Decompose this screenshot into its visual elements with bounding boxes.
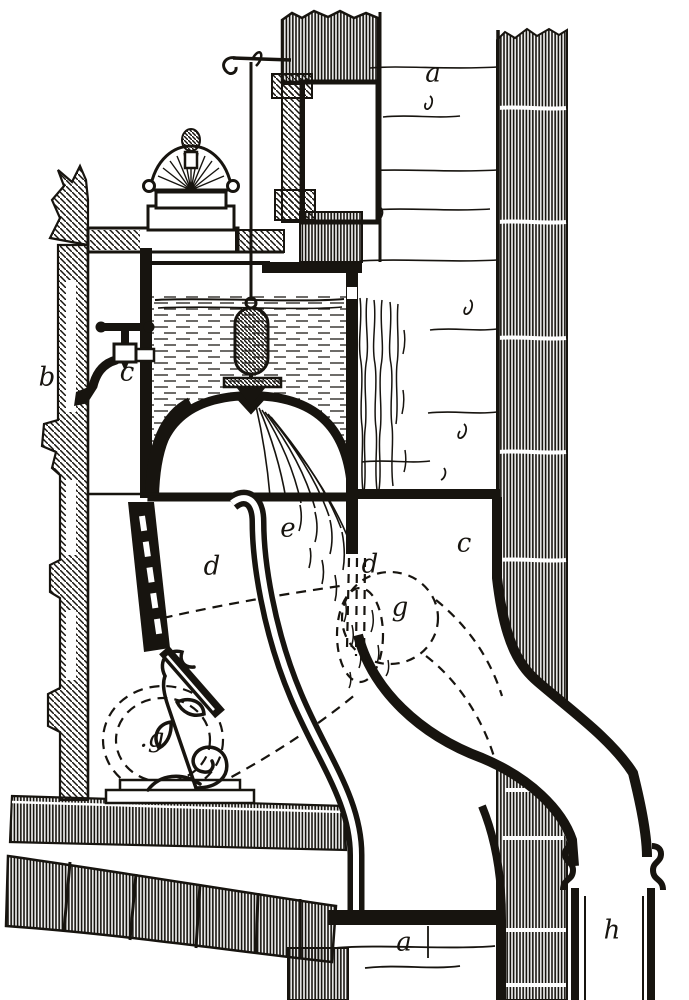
float-weight	[235, 308, 268, 374]
shaft-wall	[346, 262, 358, 554]
label-g-left: .g	[140, 726, 165, 752]
label-b: b	[39, 365, 56, 391]
label-g-right: g	[392, 595, 409, 621]
engraving-figure: a b c e d d c g .g a h	[0, 0, 689, 1000]
hook-icon	[224, 58, 236, 74]
masonry-wall-left	[42, 166, 88, 800]
lid-finial	[182, 129, 200, 151]
voussoir-arch-band	[6, 856, 336, 962]
diagonal-bar	[164, 650, 220, 714]
engraving-drawing	[0, 0, 689, 1000]
label-h: h	[604, 918, 621, 944]
label-d-left: d	[204, 554, 221, 580]
label-d-center: d	[362, 552, 379, 578]
overflow-port	[347, 287, 357, 299]
outlet-flange-right	[652, 846, 663, 890]
slotted-damper	[88, 494, 350, 714]
lid-roll-right	[228, 181, 239, 192]
counter-top	[88, 228, 284, 252]
mason-mark	[458, 424, 466, 438]
mason-mark	[425, 96, 432, 109]
tap-handle	[101, 323, 149, 331]
channel-floor	[328, 910, 500, 925]
label-c-tap: c	[120, 360, 135, 386]
tap-spout	[86, 360, 116, 397]
valve-plate	[224, 378, 281, 387]
ashlar-masonry-lower	[335, 926, 495, 968]
label-c-right: c	[457, 531, 472, 557]
label-a-lower: a	[396, 930, 412, 956]
label-a-upper: a	[425, 61, 441, 87]
mason-mark	[464, 300, 472, 314]
masonry-ledge-bottom-left	[6, 796, 348, 1000]
label-e: e	[280, 516, 295, 542]
lid-roll-left	[144, 181, 155, 192]
overflow-streams	[360, 298, 406, 492]
mason-mark	[441, 468, 445, 480]
plinth	[106, 780, 254, 803]
brick-pier-right	[497, 29, 567, 1000]
ledge	[350, 489, 500, 499]
domed-lid	[144, 129, 239, 230]
